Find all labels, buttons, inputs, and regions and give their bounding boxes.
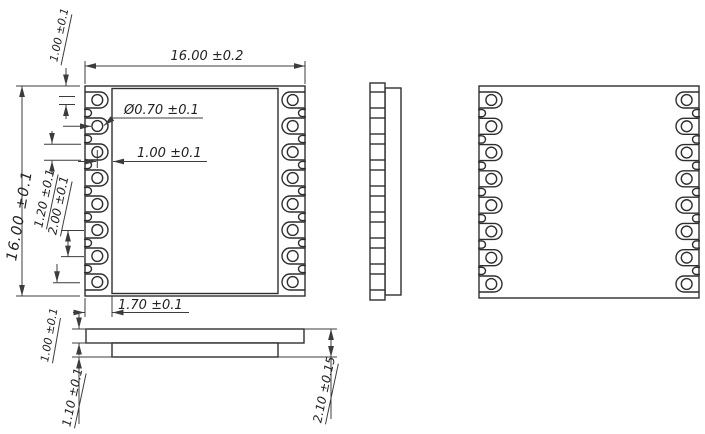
- drawing-canvas: 16.00 ±0.2 16.00 ±0.1 1.00 ±0.1 Ø0.70 ±0…: [0, 0, 705, 434]
- side-body: [385, 88, 401, 295]
- dim-total-thickness-label-group: 2.10 ±0.15: [310, 355, 339, 424]
- dim-height-left-label: 16.00 ±0.1: [4, 169, 36, 262]
- dim-underside-label-group: 1.10 ±0.1: [59, 367, 87, 429]
- dim-hole-diameter-label: Ø0.70 ±0.1: [123, 103, 199, 118]
- bottom-pcb: [86, 329, 304, 343]
- dim-pad-offset-label-group: 1.00 ±0.1: [47, 7, 73, 65]
- dim-width-top-label: 16.00 ±0.2: [171, 49, 244, 64]
- module-outline: [479, 86, 699, 298]
- bottom-underside-block: [112, 343, 278, 357]
- mechanical-drawing: 16.00 ±0.2 16.00 ±0.1 1.00 ±0.1 Ø0.70 ±0…: [0, 0, 705, 434]
- side-pad-strip: [370, 83, 385, 300]
- dim-pcb-thickness-label-group: 1.00 ±0.1: [38, 307, 62, 363]
- dim-height-left-label-group: 16.00 ±0.1: [4, 169, 36, 262]
- module-views: [84, 83, 700, 357]
- dim-body-inset-label: 1.70 ±0.1: [118, 298, 183, 313]
- dim-total-thickness-label: 2.10 ±0.15: [310, 355, 338, 424]
- dim-hole-to-body-label: 1.00 ±0.1: [137, 146, 202, 161]
